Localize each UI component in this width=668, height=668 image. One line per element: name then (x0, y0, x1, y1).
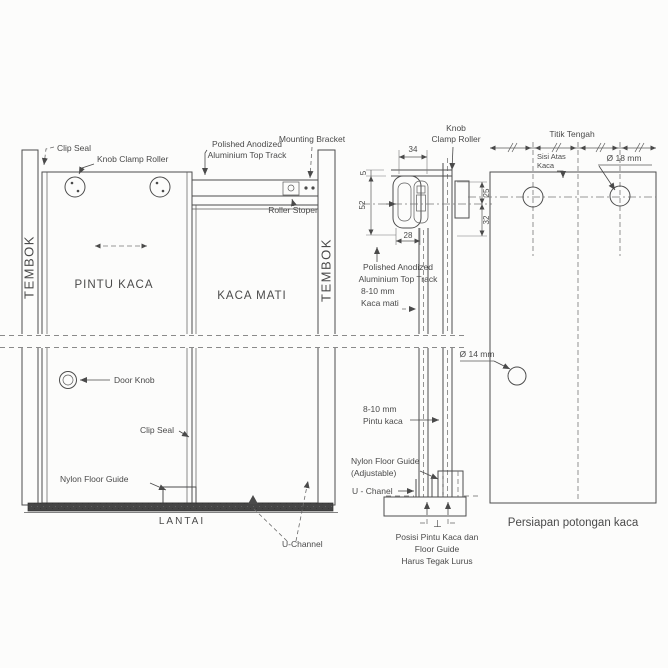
dim-34-text: 34 (409, 145, 418, 154)
u-channel-label: U-Channel (282, 539, 323, 549)
section-track-label-2: Aluminium Top Track (359, 274, 438, 284)
titik-tengah-label: Titik Tengah (549, 129, 595, 139)
section-guide-label-2: (Adjustable) (351, 468, 397, 478)
section-knob-label-1: Knob (446, 123, 466, 133)
floor-label: LANTAI (159, 516, 205, 527)
section-caption-3: Harus Tegak Lurus (401, 556, 472, 566)
section-caption-1: Posisi Pintu Kaca dan (396, 532, 479, 542)
dim-52-text: 52 (358, 200, 367, 209)
door-knob-label: Door Knob (114, 375, 155, 385)
top-track-label-1: Polished Anodized (212, 139, 282, 149)
dim-28-text: 28 (404, 231, 413, 240)
section-knob-label-2: Clamp Roller (431, 134, 480, 144)
wall-right-label: TEMBOK (318, 238, 333, 302)
section-door-label-2: Pintu kaca (363, 416, 403, 426)
section-caption-2: Floor Guide (415, 544, 460, 554)
sliding-door-drawing: TEMBOK TEMBOK (0, 0, 668, 668)
section-track-label-1: Polished Anodized (363, 262, 433, 272)
technical-drawing-page: TEMBOK TEMBOK (0, 0, 668, 668)
knob-clamp-roller-label: Knob Clamp Roller (97, 154, 169, 164)
perpendicular-symbol: ⊥ (433, 519, 442, 530)
clip-seal-top-label: Clip Seal (57, 143, 91, 153)
top-track-label-2: Aluminium Top Track (208, 150, 287, 160)
mounting-bracket-label: Mounting Bracket (279, 134, 346, 144)
fixed-panel-label: KACA MATI (217, 290, 287, 302)
hole-14-label: Ø 14 mm (460, 349, 495, 359)
door-panel-label: PINTU KACA (74, 279, 153, 291)
bracket-screw-2 (311, 186, 314, 189)
clip-seal-bottom-label: Clip Seal (140, 425, 174, 435)
break-lines (0, 334, 468, 348)
sisi-atas-label-1: Sisi Atas (537, 152, 566, 161)
section-fixed-label-2: Kaca mati (361, 298, 399, 308)
wall-left-label: TEMBOK (21, 235, 36, 299)
section-fixed-label-1: 8-10 mm (361, 286, 395, 296)
section-guide-label-1: Nylon Floor Guide (351, 456, 420, 466)
roller-stoper-label: Roller Stoper (268, 205, 318, 215)
sisi-atas-label-2: Kaca (537, 161, 555, 170)
cutting-caption: Persiapan potongan kaca (508, 517, 639, 529)
section-u-chanel-label: U - Chanel (352, 486, 393, 496)
floor-strip (28, 503, 333, 511)
nylon-floor-guide-label: Nylon Floor Guide (60, 474, 129, 484)
bracket-screw-1 (304, 186, 307, 189)
hole-18-label: Ø 18 mm (607, 153, 642, 163)
dim-5-text: 5 (359, 170, 368, 175)
section-door-label-1: 8-10 mm (363, 404, 397, 414)
